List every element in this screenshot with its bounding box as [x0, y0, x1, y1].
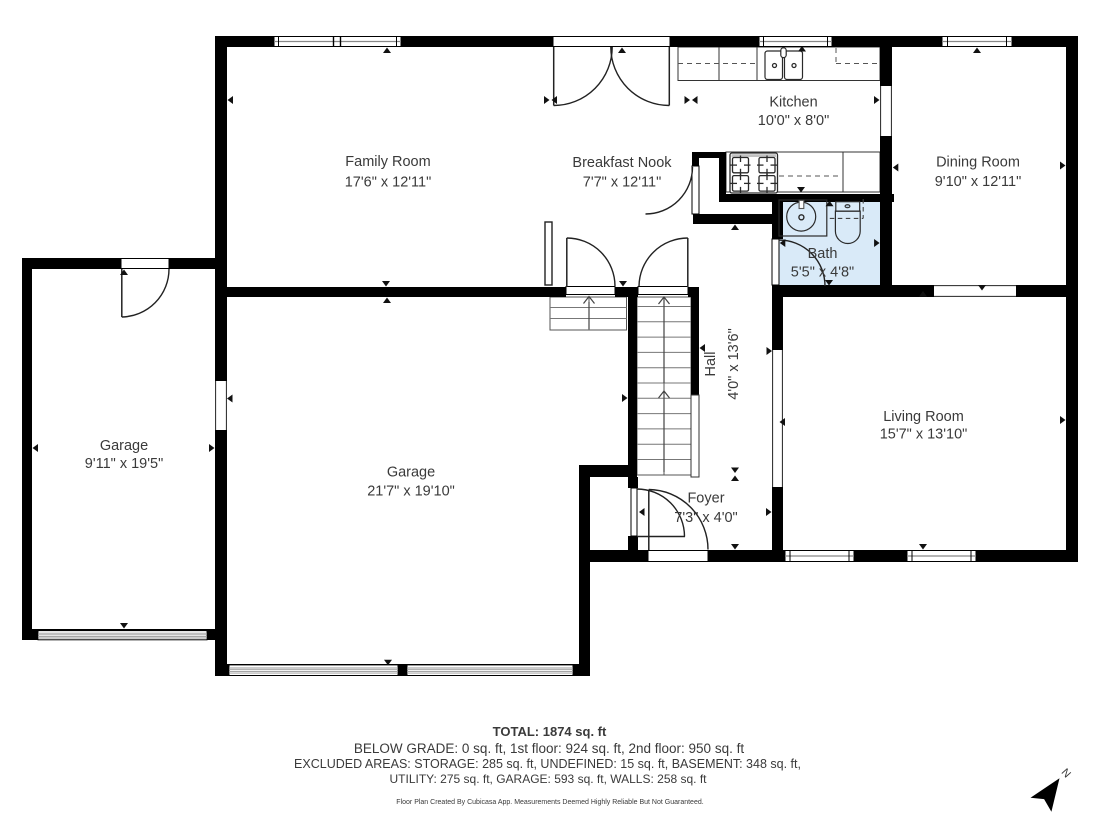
svg-text:15'7" x 13'10": 15'7" x 13'10": [880, 426, 968, 442]
svg-text:Breakfast Nook: Breakfast Nook: [572, 155, 672, 171]
svg-text:Dining Room: Dining Room: [936, 155, 1020, 171]
svg-text:21'7" x 19'10": 21'7" x 19'10": [367, 484, 455, 500]
svg-text:9'11" x 19'5": 9'11" x 19'5": [85, 456, 163, 472]
svg-text:10'0" x 8'0": 10'0" x 8'0": [758, 113, 829, 129]
svg-text:Garage: Garage: [387, 465, 435, 481]
svg-text:5'5" x 4'8": 5'5" x 4'8": [791, 265, 854, 281]
svg-text:17'6" x 12'11": 17'6" x 12'11": [345, 175, 432, 191]
svg-text:9'10" x 12'11": 9'10" x 12'11": [935, 174, 1022, 190]
svg-text:7'7" x 12'11": 7'7" x 12'11": [583, 175, 661, 191]
svg-text:7'3" x 4'0": 7'3" x 4'0": [674, 510, 737, 526]
svg-text:TOTAL: 1874 sq. ft: TOTAL: 1874 sq. ft: [493, 724, 607, 739]
svg-text:Kitchen: Kitchen: [769, 95, 817, 111]
svg-text:UTILITY: 275 sq. ft, GARAGE: 5: UTILITY: 275 sq. ft, GARAGE: 593 sq. ft,…: [389, 772, 707, 786]
svg-text:Bath: Bath: [808, 246, 838, 262]
svg-text:N: N: [1059, 767, 1073, 781]
svg-text:Garage: Garage: [100, 438, 148, 454]
svg-text:Foyer: Foyer: [687, 491, 724, 507]
svg-text:EXCLUDED AREAS: STORAGE: 285 s: EXCLUDED AREAS: STORAGE: 285 sq. ft, UND…: [294, 757, 801, 771]
svg-text:Floor Plan Created By Cubicasa: Floor Plan Created By Cubicasa App. Meas…: [396, 799, 703, 806]
svg-text:4'0" x 13'6": 4'0" x 13'6": [726, 328, 742, 399]
svg-text:Hall: Hall: [703, 352, 719, 377]
svg-text:BELOW GRADE: 0 sq. ft, 1st flo: BELOW GRADE: 0 sq. ft, 1st floor: 924 sq…: [354, 741, 744, 756]
svg-text:Living Room: Living Room: [883, 409, 964, 425]
svg-text:Family Room: Family Room: [345, 154, 430, 170]
